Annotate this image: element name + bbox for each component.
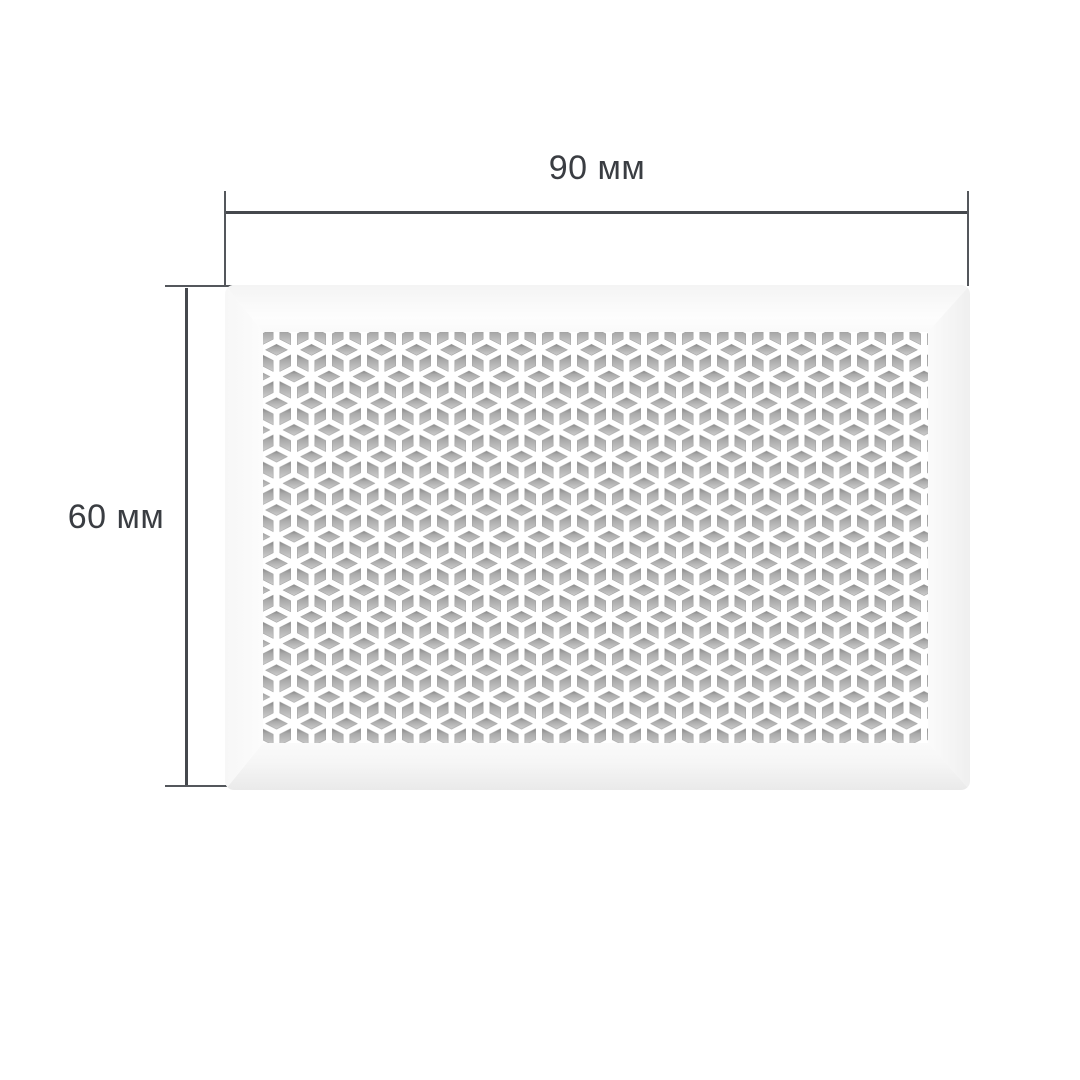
width-dimension-line — [226, 211, 968, 214]
panel-bevel-bottom — [225, 743, 970, 790]
width-extension-line-right — [967, 191, 969, 286]
panel-bevel-right — [928, 285, 970, 790]
perforated-panel — [225, 285, 970, 790]
width-dimension-label: 90 мм — [497, 151, 697, 185]
panel-bevel-left — [225, 285, 263, 790]
page: 90 мм 60 мм — [0, 0, 1080, 1080]
height-dimension-line — [185, 288, 188, 786]
panel-bevel-top — [225, 285, 970, 332]
cube-perforation-pattern — [263, 332, 928, 743]
width-extension-line-left — [224, 191, 226, 286]
